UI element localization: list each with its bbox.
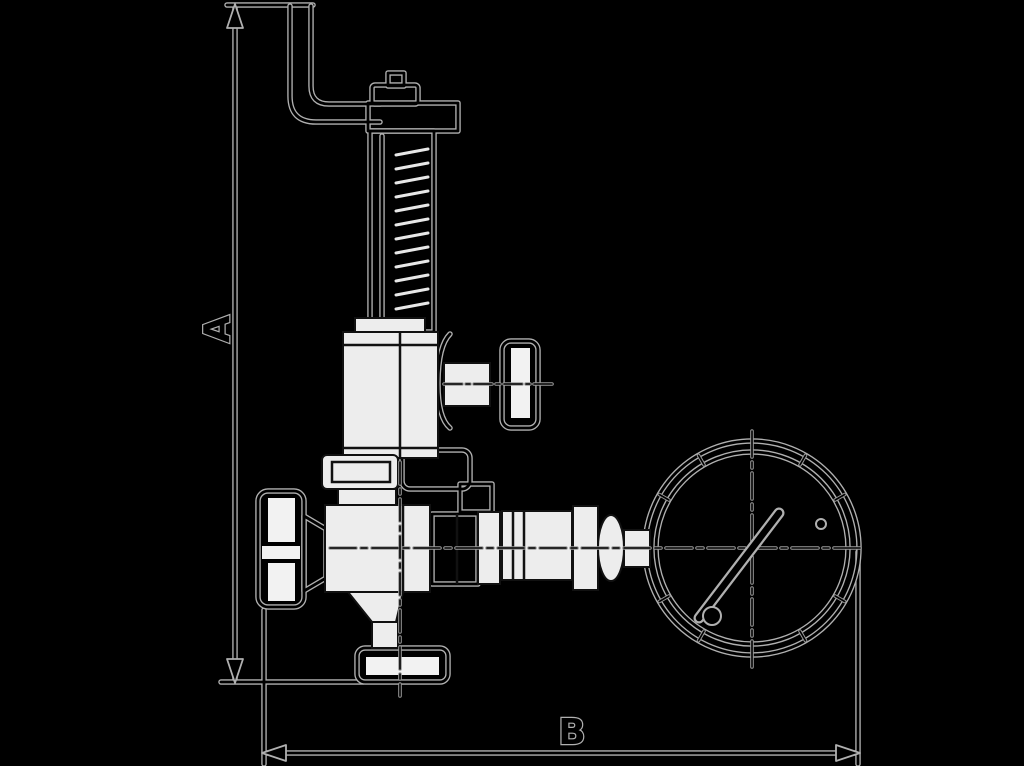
bonnet-step — [355, 318, 425, 332]
valve-technical-drawing: A B — [0, 0, 1024, 766]
valve-white-faces — [262, 318, 650, 675]
bonnet — [343, 332, 438, 458]
knob-middle-band — [262, 546, 300, 559]
body-neck — [338, 489, 396, 505]
funnel-outlet — [348, 592, 403, 622]
dimension-label-b: B — [558, 712, 585, 753]
bottom-flange-window — [366, 657, 439, 675]
gauge-needle — [699, 513, 779, 618]
knob-window-top — [268, 498, 295, 542]
dial-screw-dot — [816, 519, 826, 529]
needle-counterweight-dot — [703, 607, 721, 625]
dimension-label-a: A — [197, 315, 238, 343]
pressure-gauge-details — [699, 513, 826, 625]
union-flange — [322, 455, 398, 489]
knob-window-bottom — [268, 563, 295, 601]
drawing-canvas: A B — [0, 0, 1024, 766]
funnel-neck — [372, 622, 398, 648]
spring-coils — [396, 149, 428, 309]
